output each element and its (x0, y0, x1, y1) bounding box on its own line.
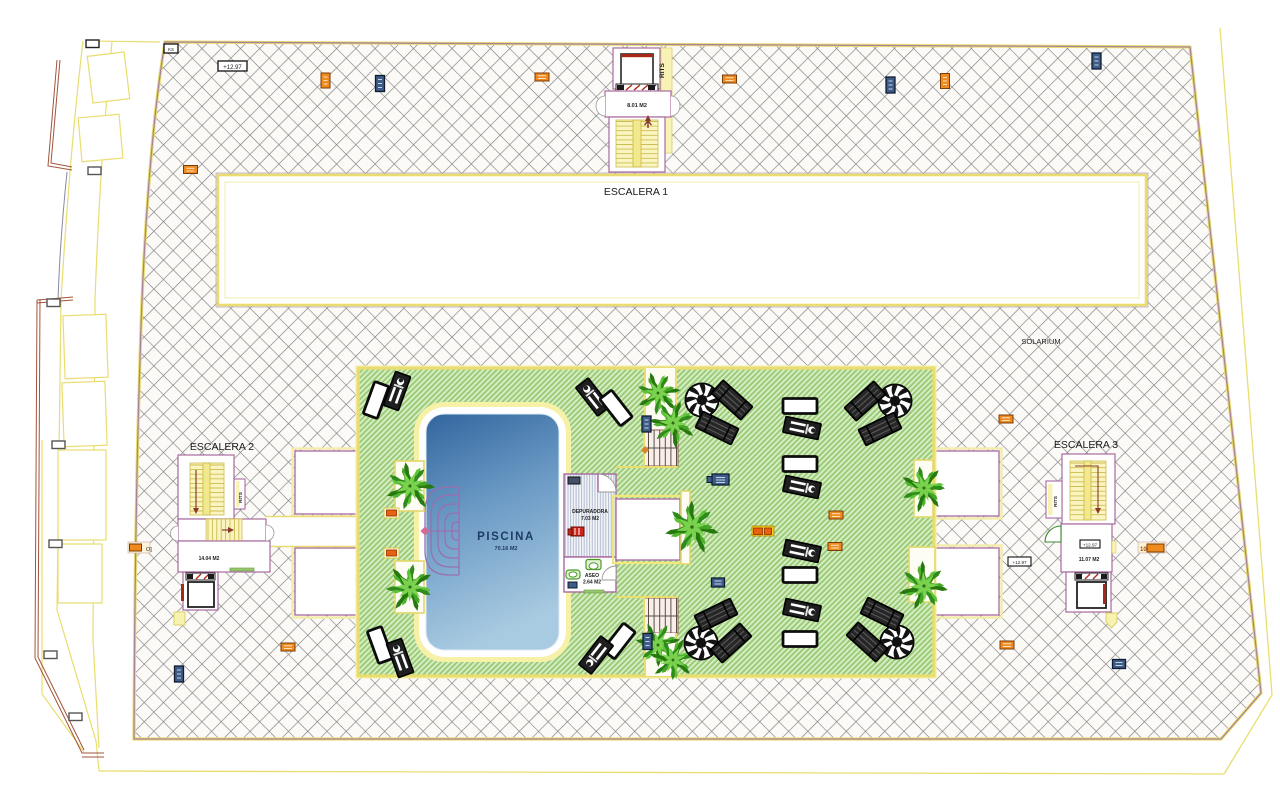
svg-text:ASEO: ASEO (585, 573, 599, 579)
svg-text:ESCALERA 3: ESCALERA 3 (1054, 439, 1118, 451)
svg-text:SOLARIUM: SOLARIUM (1021, 337, 1060, 346)
svg-text:10: 10 (1140, 547, 1147, 553)
svg-text:PISCINA: PISCINA (477, 531, 535, 543)
svg-text:O]: O] (146, 547, 152, 553)
svg-text:+12.97: +12.97 (1012, 560, 1027, 565)
svg-text:RITS: RITS (1053, 495, 1059, 507)
svg-text:2.64 M2: 2.64 M2 (583, 580, 601, 586)
svg-text:+12.97: +12.97 (1083, 542, 1098, 547)
svg-text:KS: KS (168, 47, 174, 52)
svg-text:+12.97: +12.97 (223, 65, 242, 71)
svg-text:8.01 M2: 8.01 M2 (627, 103, 647, 109)
svg-text:RITS: RITS (659, 63, 666, 78)
svg-text:ESCALERA 1: ESCALERA 1 (604, 186, 668, 198)
svg-text:70.16 M2: 70.16 M2 (495, 546, 518, 552)
svg-text:11.07 M2: 11.07 M2 (1079, 557, 1100, 563)
svg-text:7.03 M2: 7.03 M2 (581, 516, 599, 522)
svg-text:DEPURADORA: DEPURADORA (572, 509, 608, 515)
svg-text:ESCALERA 2: ESCALERA 2 (190, 441, 254, 453)
svg-text:14.04 M2: 14.04 M2 (199, 556, 220, 562)
svg-text:RITS: RITS (238, 491, 244, 503)
